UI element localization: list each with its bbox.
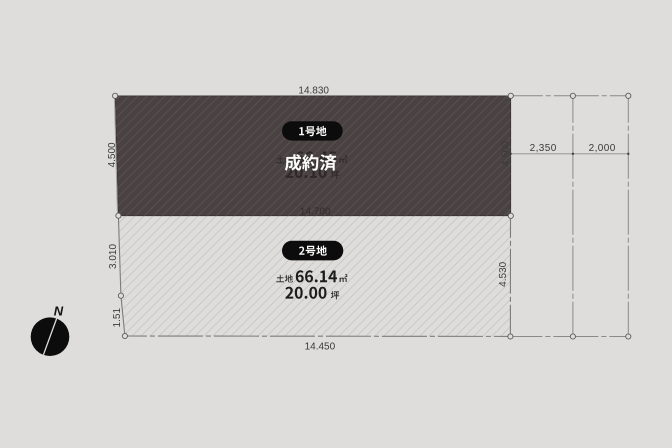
svg-text:3.010: 3.010 <box>108 244 119 269</box>
svg-text:4.500: 4.500 <box>107 142 118 167</box>
svg-text:2,000: 2,000 <box>589 143 616 154</box>
svg-text:4.530: 4.530 <box>498 261 509 286</box>
svg-text:14.450: 14.450 <box>305 341 336 352</box>
svg-text:N: N <box>54 304 64 319</box>
svg-text:1.51: 1.51 <box>112 308 123 328</box>
svg-text:4.500: 4.500 <box>500 141 511 166</box>
svg-text:14.700: 14.700 <box>300 206 331 217</box>
svg-text:14.830: 14.830 <box>298 85 329 96</box>
svg-text:2,350: 2,350 <box>530 143 557 154</box>
